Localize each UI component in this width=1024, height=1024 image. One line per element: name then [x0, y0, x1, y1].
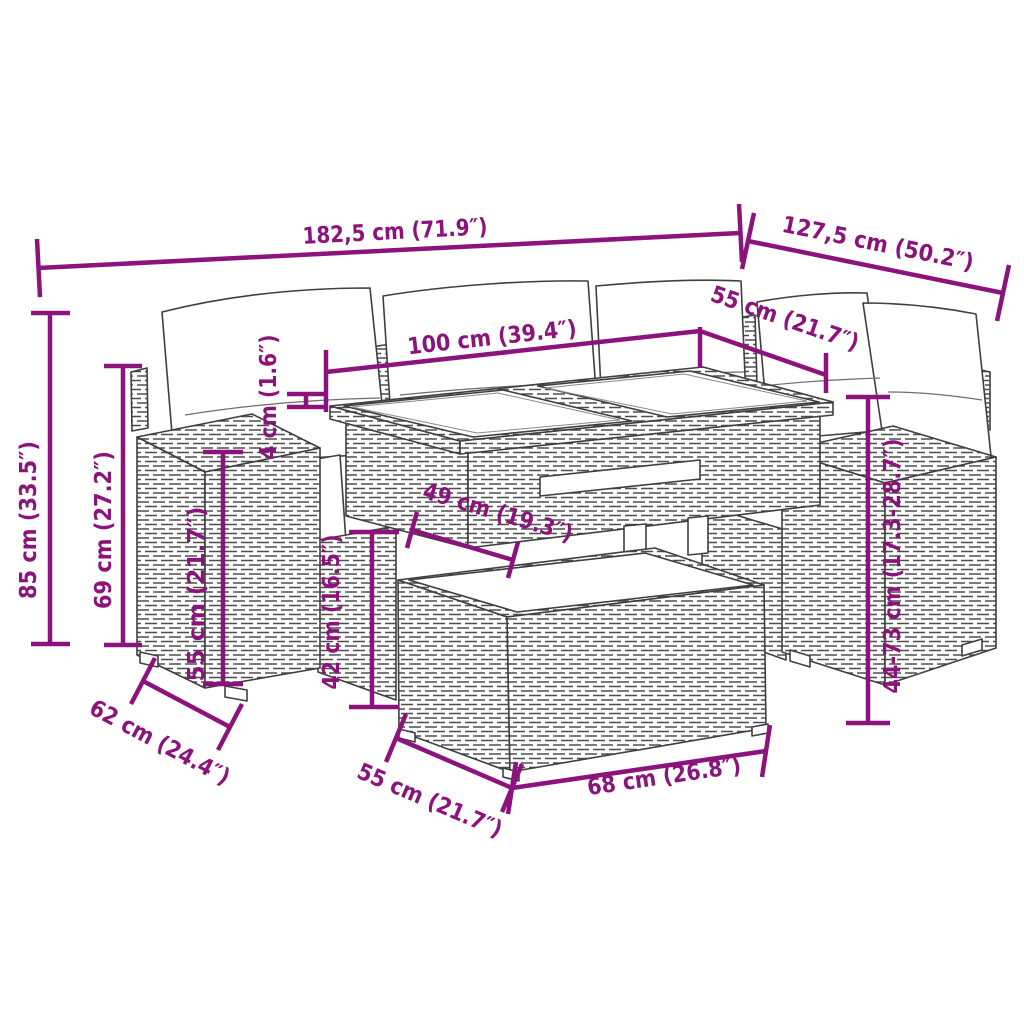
dim-seat-depth-label: 62 cm (24.4″) [85, 695, 234, 791]
dim-ottoman-height-label: 42 cm (16.5″) [319, 535, 345, 690]
dim-ottoman-width-label: 68 cm (26.8″) [586, 753, 743, 801]
dim-ottoman-depth-label: 55 cm (21.7″) [353, 759, 506, 843]
dim-table-height-adjustable-label: 44-73 cm (17.3-28.7″) [880, 439, 906, 694]
dim-armrest-height-label: 55 cm (21.7″) [184, 507, 210, 682]
table-leg [688, 516, 708, 555]
ottoman-front [507, 585, 766, 772]
ottoman [398, 548, 768, 781]
dim-overall-height-label: 85 cm (33.5″) [16, 441, 42, 599]
dim-overall-width-label: 182,5 cm (71.9″) [302, 214, 488, 250]
furniture-line-art: 182,5 cm (71.9″) 127,5 cm (50.2″) 100 cm… [0, 0, 1024, 1024]
ottoman-foot [752, 724, 768, 736]
dim-backrest-height-label: 69 cm (27.2″) [91, 451, 117, 609]
dim-tabletop-thickness-label: 4 cm (1.6″) [256, 335, 282, 460]
sofa-foot [225, 686, 247, 701]
product-dimension-diagram: 182,5 cm (71.9″) 127,5 cm (50.2″) 100 cm… [0, 0, 1024, 1024]
sofa-back-post [131, 368, 148, 431]
